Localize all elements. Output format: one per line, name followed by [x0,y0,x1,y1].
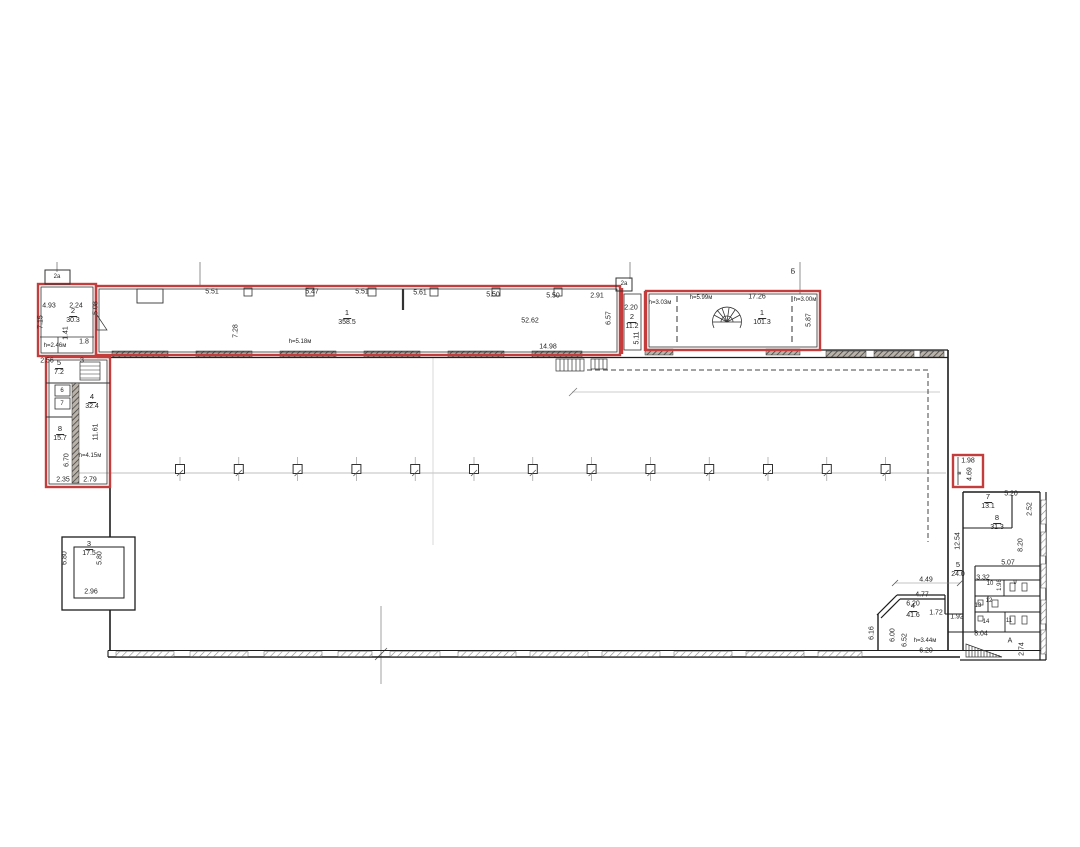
sanitary-fixtures [978,583,1027,624]
stair-icon [556,359,607,371]
red-sections [38,284,983,487]
lower-left-annex [62,537,135,610]
right-wall-windows [1041,500,1046,654]
section-dashed-partitions [677,296,792,345]
grid-lines [74,358,946,684]
floor-plan-drawing [0,0,1080,847]
walls [97,350,1046,657]
dashed-boundary [587,370,928,542]
floor-plan-canvas: 2а4.932.247.155.081.411.8h=2.46м5.515.47… [0,0,1080,847]
left-annex-interior [46,362,110,483]
bottom-wall-windows [116,652,862,657]
bottom-block-walls [877,580,963,651]
right-block-walls [948,492,1046,660]
spiral-stair-icon [713,307,742,328]
columns [176,457,891,481]
hall-details [97,288,562,330]
